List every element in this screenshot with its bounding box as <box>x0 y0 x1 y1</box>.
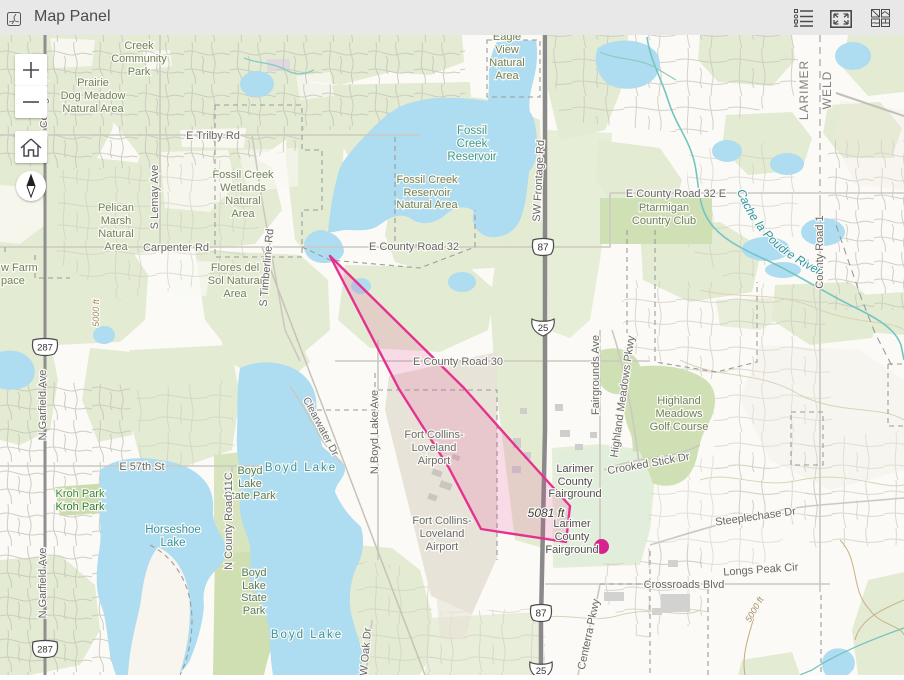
svg-text:WELD: WELD <box>820 71 834 110</box>
svg-text:Highland: Highland <box>657 395 700 407</box>
svg-text:County: County <box>558 476 593 488</box>
svg-text:Fairground: Fairground <box>548 488 601 500</box>
svg-text:Creek: Creek <box>457 138 488 150</box>
svg-text:Dog Meadow: Dog Meadow <box>61 90 126 102</box>
svg-text:5081 ft: 5081 ft <box>528 506 565 520</box>
svg-text:87: 87 <box>537 243 549 254</box>
svg-text:S Lemay Ave: S Lemay Ave <box>149 165 161 230</box>
svg-text:w Farm: w Farm <box>0 262 38 274</box>
svg-text:287: 287 <box>37 645 53 656</box>
svg-text:E County Road 30: E County Road 30 <box>413 356 503 368</box>
svg-text:Sol Natural: Sol Natural <box>208 275 262 287</box>
svg-text:Marsh: Marsh <box>101 215 132 227</box>
svg-text:N Boyd Lake Ave: N Boyd Lake Ave <box>369 390 381 474</box>
svg-text:Park: Park <box>243 605 266 617</box>
svg-text:Natural: Natural <box>489 57 524 69</box>
svg-text:Community: Community <box>111 53 167 65</box>
svg-text:Kroh Park: Kroh Park <box>56 501 105 513</box>
svg-text:Reservoir: Reservoir <box>403 187 450 199</box>
svg-text:Area: Area <box>104 241 128 253</box>
svg-text:Eagle: Eagle <box>493 35 521 43</box>
svg-text:Fossil Creek: Fossil Creek <box>396 174 458 186</box>
svg-text:Horseshoe: Horseshoe <box>145 524 201 536</box>
svg-text:N Garfield Ave: N Garfield Ave <box>37 370 49 441</box>
svg-text:Fairground: Fairground <box>545 544 598 556</box>
svg-text:State: State <box>241 592 267 604</box>
svg-text:Area: Area <box>231 208 255 220</box>
svg-text:287: 287 <box>37 343 53 354</box>
svg-text:Natural: Natural <box>98 228 133 240</box>
svg-text:Fossil Creek: Fossil Creek <box>212 169 274 181</box>
svg-text:Boyd Lake: Boyd Lake <box>271 629 343 641</box>
svg-text:Larimer: Larimer <box>556 463 594 475</box>
svg-text:Fossil: Fossil <box>457 125 487 137</box>
svg-text:Area: Area <box>495 70 519 82</box>
svg-text:County: County <box>555 531 590 543</box>
svg-text:County Road 1: County Road 1 <box>814 215 826 288</box>
svg-text:Boyd: Boyd <box>237 465 262 477</box>
svg-text:Area: Area <box>223 288 247 300</box>
svg-text:Fairgrounds Ave: Fairgrounds Ave <box>590 335 602 415</box>
svg-text:N Garfield Ave: N Garfield Ave <box>37 548 49 619</box>
svg-text:Wetlands: Wetlands <box>220 182 266 194</box>
svg-text:Lake: Lake <box>238 478 262 490</box>
svg-text:Airport: Airport <box>418 455 450 467</box>
svg-text:Natural Area: Natural Area <box>396 199 458 211</box>
svg-text:LARIMER: LARIMER <box>797 60 811 120</box>
svg-text:E County Road 32 E: E County Road 32 E <box>626 188 726 200</box>
svg-text:Boyd Lake: Boyd Lake <box>265 462 337 474</box>
svg-text:Reservoir: Reservoir <box>447 151 496 163</box>
svg-text:Ptarmigan: Ptarmigan <box>639 202 689 214</box>
svg-text:Natural: Natural <box>225 195 260 207</box>
svg-text:Park: Park <box>128 66 151 78</box>
svg-text:Meadows: Meadows <box>655 408 703 420</box>
svg-text:Crossroads Blvd: Crossroads Blvd <box>644 579 725 591</box>
svg-text:Airport: Airport <box>426 541 458 553</box>
svg-text:Fort Collins-: Fort Collins- <box>412 515 472 527</box>
svg-text:N County Road 11C: N County Road 11C <box>223 472 235 570</box>
svg-text:E 57th St: E 57th St <box>119 461 164 473</box>
svg-text:Loveland: Loveland <box>420 528 465 540</box>
svg-text:Prairie: Prairie <box>77 77 109 89</box>
svg-text:5000 ft: 5000 ft <box>91 299 101 327</box>
svg-text:Boyd: Boyd <box>241 567 266 579</box>
svg-text:E County Road 32: E County Road 32 <box>369 241 459 253</box>
svg-text:Natural Area: Natural Area <box>62 103 124 115</box>
svg-text:87: 87 <box>535 609 547 620</box>
svg-text:Loveland: Loveland <box>412 442 457 454</box>
svg-text:Country Club: Country Club <box>632 215 696 227</box>
svg-text:Pelican: Pelican <box>98 202 134 214</box>
svg-text:pace: pace <box>1 275 25 287</box>
svg-text:Lake: Lake <box>242 580 266 592</box>
svg-text:25: 25 <box>538 323 549 334</box>
svg-text:Lake: Lake <box>161 537 186 549</box>
svg-text:Kroh Park: Kroh Park <box>56 488 105 500</box>
svg-text:Fort Collins-: Fort Collins- <box>404 429 464 441</box>
svg-text:Carpenter Rd: Carpenter Rd <box>143 242 209 254</box>
svg-text:Flores del: Flores del <box>211 262 259 274</box>
svg-text:Creek: Creek <box>124 40 154 52</box>
svg-text:View: View <box>495 44 519 56</box>
svg-text:Golf Course: Golf Course <box>650 421 709 433</box>
svg-text:25: 25 <box>536 666 547 675</box>
svg-text:E Trilby Rd: E Trilby Rd <box>186 130 240 142</box>
